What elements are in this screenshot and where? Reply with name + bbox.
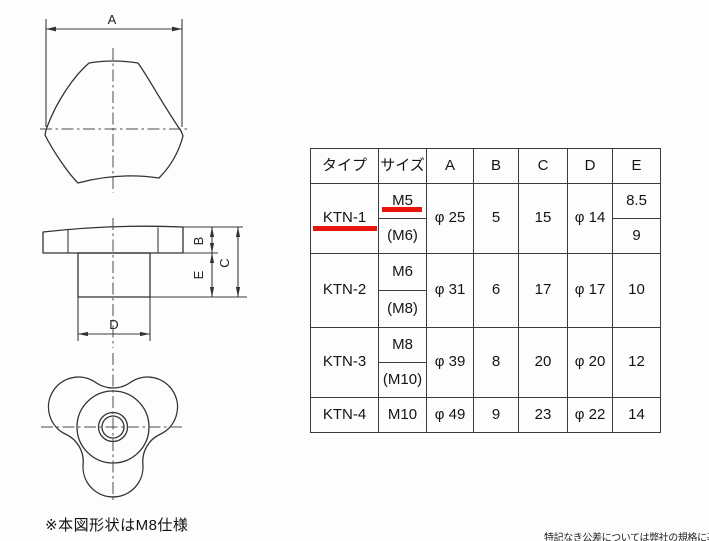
page: A B E C D	[0, 0, 709, 541]
dim-label-b: B	[191, 237, 206, 246]
table-row-ktn1: KTN-1 M5 φ 25 5 15 φ 14 8.5	[311, 184, 661, 219]
cell-e-alt: 9	[613, 219, 661, 254]
cell-d: φ 14	[568, 184, 613, 254]
cell-c: 23	[519, 398, 568, 433]
arrowhead-c-bottom	[236, 287, 240, 297]
side-view-drawing: B E C D	[25, 205, 255, 350]
header-type: タイプ	[311, 149, 379, 184]
cell-c: 20	[519, 328, 568, 398]
knob-boss-outline	[78, 253, 150, 297]
cell-a: φ 31	[427, 254, 474, 328]
cell-type: KTN-3	[311, 328, 379, 398]
cell-e: 12	[613, 328, 661, 398]
arrowhead-e-top	[210, 253, 214, 263]
arrowhead-b-top	[210, 227, 214, 237]
cell-type: KTN-2	[311, 254, 379, 328]
cell-b: 6	[474, 254, 519, 328]
cell-size-alt: (M8)	[379, 291, 427, 328]
dim-label-e: E	[191, 270, 206, 279]
arrowhead-d-right	[140, 332, 150, 336]
arrowhead-right	[172, 27, 182, 32]
arrowhead-left	[46, 27, 56, 32]
arrowhead-c-top	[236, 227, 240, 237]
type-label: KTN-1	[323, 209, 366, 226]
table-row-ktn3: KTN-3 M8 φ 39 8 20 φ 20 12	[311, 328, 661, 363]
header-a: A	[427, 149, 474, 184]
highlight-underline-size	[382, 207, 422, 212]
cell-size-primary: M10	[379, 398, 427, 433]
arrowhead-d-left	[78, 332, 88, 336]
cell-type: KTN-4	[311, 398, 379, 433]
cell-size-primary: M5	[379, 184, 427, 219]
cell-a: φ 39	[427, 328, 474, 398]
header-size: サイズ	[379, 149, 427, 184]
table-row-ktn2: KTN-2 M6 φ 31 6 17 φ 17 10	[311, 254, 661, 291]
header-c: C	[519, 149, 568, 184]
knob-front-outline	[45, 61, 183, 183]
cell-e: 14	[613, 398, 661, 433]
arrowhead-e-bottom	[210, 287, 214, 297]
cell-b: 9	[474, 398, 519, 433]
cell-size-alt: (M10)	[379, 363, 427, 398]
dim-label-a: A	[108, 12, 117, 27]
cell-a: φ 49	[427, 398, 474, 433]
table-row-ktn4: KTN-4 M10 φ 49 9 23 φ 22 14	[311, 398, 661, 433]
header-d: D	[568, 149, 613, 184]
table-header-row: タイプ サイズ A B C D E	[311, 149, 661, 184]
header-e: E	[613, 149, 661, 184]
dim-label-c: C	[217, 258, 232, 267]
cell-d: φ 20	[568, 328, 613, 398]
footer-note: 特記なき公差については弊社の規格に基	[544, 529, 709, 541]
front-view-drawing: A	[25, 5, 225, 202]
top-view-drawing	[25, 350, 225, 505]
cell-e-primary: 8.5	[613, 184, 661, 219]
cell-type: KTN-1	[311, 184, 379, 254]
cell-a: φ 25	[427, 184, 474, 254]
trilobe-outline	[48, 377, 177, 497]
cell-c: 15	[519, 184, 568, 254]
dim-label-d: D	[109, 317, 118, 332]
cell-d: φ 22	[568, 398, 613, 433]
arrowhead-b-bottom	[210, 243, 214, 253]
highlight-underline-type	[313, 226, 377, 231]
drawing-note: ※本図形状はM8仕様	[45, 514, 188, 535]
cell-e: 10	[613, 254, 661, 328]
cell-b: 5	[474, 184, 519, 254]
cell-c: 17	[519, 254, 568, 328]
cell-size-primary: M6	[379, 254, 427, 291]
spec-table: タイプ サイズ A B C D E KTN-1 M5 φ 25 5	[310, 148, 661, 433]
cell-b: 8	[474, 328, 519, 398]
header-b: B	[474, 149, 519, 184]
cell-d: φ 17	[568, 254, 613, 328]
cell-size-alt: (M6)	[379, 219, 427, 254]
cell-size-primary: M8	[379, 328, 427, 363]
